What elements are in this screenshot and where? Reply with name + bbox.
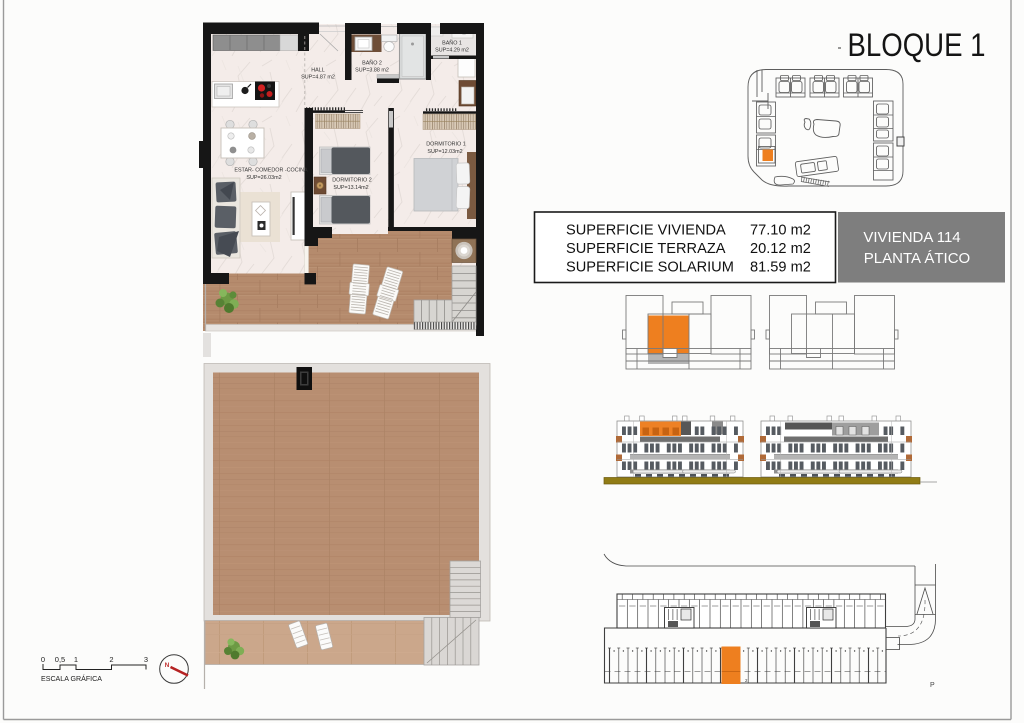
svg-text:3: 3 [144, 655, 148, 664]
svg-text:ESCALA GRÁFICA: ESCALA GRÁFICA [41, 674, 103, 683]
svg-text:SUP=4.29 m2: SUP=4.29 m2 [435, 48, 469, 54]
svg-text:ESTAR- COMEDOR -COCINA: ESTAR- COMEDOR -COCINA [234, 168, 308, 174]
svg-text:SUP=3.88 m2: SUP=3.88 m2 [355, 68, 389, 74]
svg-text:SUPERFICIE TERRAZA: SUPERFICIE TERRAZA [566, 241, 726, 257]
svg-text:PLANTA ÁTICO: PLANTA ÁTICO [864, 250, 970, 267]
svg-text:SUP=13.14m2: SUP=13.14m2 [333, 185, 368, 191]
svg-text:HALL: HALL [311, 68, 325, 74]
svg-text:2: 2 [109, 655, 113, 664]
svg-text:DORMITORIO 1: DORMITORIO 1 [426, 142, 465, 148]
svg-text:BAÑO 2: BAÑO 2 [362, 60, 382, 67]
svg-text:0,5: 0,5 [55, 655, 65, 664]
svg-text:BLOQUE 1: BLOQUE 1 [848, 27, 986, 63]
svg-text:0: 0 [41, 655, 45, 664]
svg-text:SUPERFICIE VIVIENDA: SUPERFICIE VIVIENDA [566, 223, 726, 239]
svg-text:P: P [930, 682, 935, 689]
svg-text:1: 1 [74, 655, 78, 664]
svg-text:BAÑO 1: BAÑO 1 [442, 40, 462, 47]
svg-text:77.10 m2: 77.10 m2 [750, 223, 811, 239]
svg-text:SUP=26.03m2: SUP=26.03m2 [246, 175, 281, 181]
svg-text:DORMITORIO 2: DORMITORIO 2 [332, 178, 371, 184]
svg-text:N: N [165, 662, 170, 669]
svg-text:81.59 m2: 81.59 m2 [750, 260, 811, 276]
svg-text:VIVIENDA 114: VIVIENDA 114 [863, 229, 960, 246]
svg-text:SUPERFICIE SOLARIUM: SUPERFICIE SOLARIUM [566, 260, 734, 276]
svg-text:SUP=4.87 m2: SUP=4.87 m2 [301, 75, 335, 81]
svg-text:20.12 m2: 20.12 m2 [750, 241, 811, 257]
svg-text:SUP=12.03m2: SUP=12.03m2 [427, 149, 462, 155]
